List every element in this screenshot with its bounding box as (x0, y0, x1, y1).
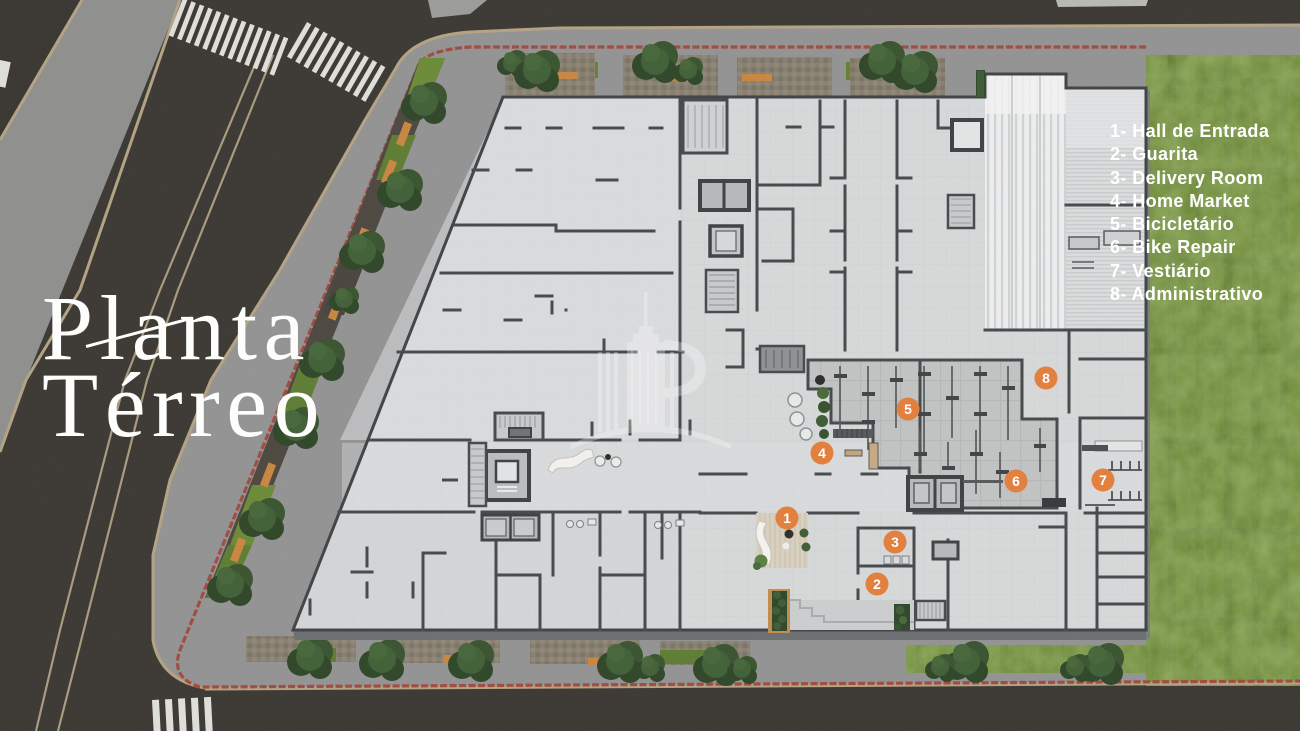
svg-text:1: 1 (783, 510, 791, 526)
svg-text:3: 3 (891, 534, 899, 550)
svg-text:6: 6 (1012, 473, 1020, 489)
svg-text:7: 7 (1099, 472, 1107, 488)
svg-text:5: 5 (904, 401, 912, 417)
svg-text:2: 2 (873, 576, 881, 592)
svg-text:8: 8 (1042, 370, 1050, 386)
svg-text:4: 4 (818, 445, 826, 461)
